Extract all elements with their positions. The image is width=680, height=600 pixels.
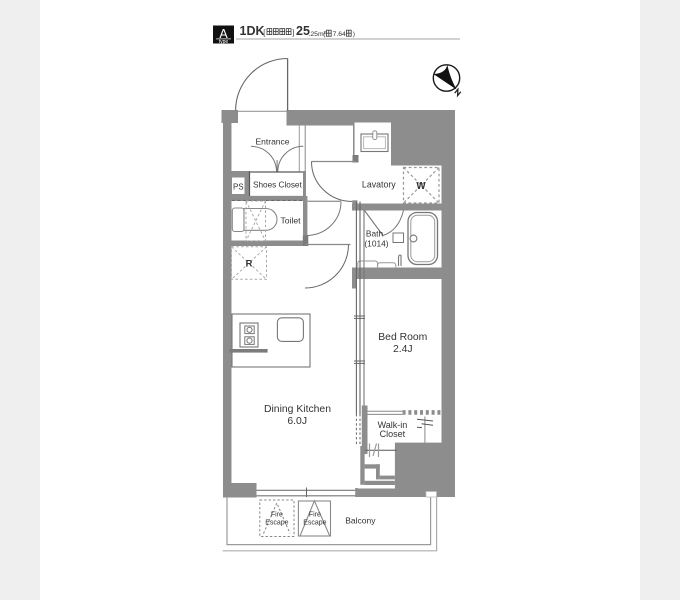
- svg-text:Shoes Closet: Shoes Closet: [253, 180, 302, 189]
- svg-text:Entrance: Entrance: [255, 137, 289, 147]
- svg-text:Toilet: Toilet: [280, 215, 301, 225]
- svg-text:6.0J: 6.0J: [287, 416, 307, 427]
- svg-text:Balcony: Balcony: [345, 515, 376, 525]
- svg-text:W: W: [416, 181, 426, 192]
- svg-text:Escape: Escape: [303, 520, 326, 527]
- svg-text:Dining Kitchen: Dining Kitchen: [264, 404, 331, 415]
- svg-text:[: [: [263, 28, 266, 37]
- svg-text:7.64: 7.64: [333, 31, 346, 38]
- svg-text:]: ]: [292, 28, 294, 37]
- svg-text:Closet: Closet: [380, 429, 406, 439]
- svg-text:R: R: [246, 258, 253, 269]
- svg-text:Fire: Fire: [309, 511, 321, 518]
- svg-text:Lavatory: Lavatory: [362, 180, 396, 190]
- svg-text:PS: PS: [233, 183, 244, 192]
- svg-text:Fire: Fire: [271, 511, 283, 518]
- svg-text:2.4J: 2.4J: [393, 344, 413, 355]
- svg-text:Escape: Escape: [265, 520, 288, 527]
- svg-text:(1014): (1014): [364, 238, 388, 248]
- svg-text:Bed Room: Bed Room: [378, 332, 427, 343]
- svg-text:Bath: Bath: [366, 229, 384, 239]
- svg-text:1DK: 1DK: [240, 24, 265, 38]
- svg-text:): ): [353, 31, 355, 38]
- svg-text:type: type: [219, 39, 229, 45]
